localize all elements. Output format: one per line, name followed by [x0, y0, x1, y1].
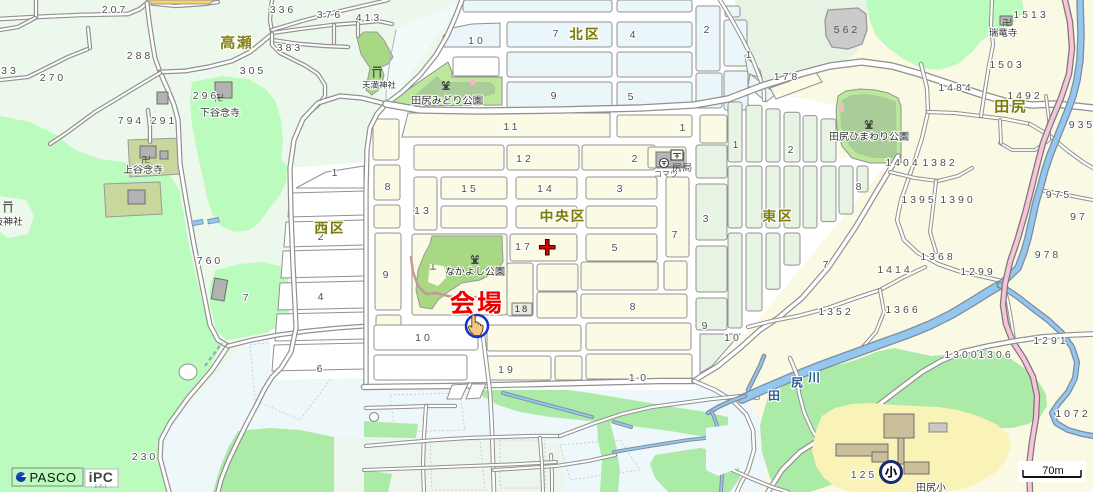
svg-text:4: 4	[630, 29, 639, 41]
svg-text:7: 7	[672, 229, 681, 241]
svg-text:11: 11	[504, 121, 521, 133]
svg-text:3: 3	[703, 213, 712, 225]
svg-text:3: 3	[617, 183, 626, 195]
svg-text:4: 4	[318, 291, 327, 303]
svg-text:975: 975	[1046, 189, 1073, 201]
svg-text:8: 8	[856, 181, 865, 193]
svg-text:1-0: 1-0	[629, 372, 647, 384]
svg-text:1382: 1382	[922, 157, 957, 169]
svg-text:6: 6	[317, 363, 326, 375]
svg-text:305: 305	[240, 65, 267, 77]
svg-text:1366: 1366	[885, 304, 920, 316]
svg-text:794: 794	[118, 115, 145, 127]
svg-text:13: 13	[414, 205, 432, 217]
svg-text:7: 7	[553, 28, 562, 40]
svg-text:1404: 1404	[885, 157, 920, 169]
svg-text:33: 33	[1, 65, 19, 77]
svg-text:178: 178	[774, 71, 801, 83]
svg-text:2: 2	[632, 153, 641, 165]
svg-text:17: 17	[515, 241, 533, 253]
svg-text:1414: 1414	[877, 264, 912, 276]
svg-text:562: 562	[834, 24, 861, 36]
svg-text:383: 383	[277, 42, 304, 54]
svg-text:935: 935	[1069, 119, 1093, 131]
svg-text:1513: 1513	[1013, 9, 1048, 21]
svg-text:5: 5	[628, 91, 637, 103]
svg-text:1: 1	[746, 49, 755, 61]
svg-text:2: 2	[788, 144, 797, 156]
svg-text:1484: 1484	[938, 82, 973, 94]
svg-text:10: 10	[724, 332, 742, 344]
svg-text:1299: 1299	[960, 266, 995, 278]
svg-text:5: 5	[612, 242, 621, 254]
svg-text:15: 15	[461, 183, 479, 195]
svg-text:1: 1	[680, 122, 689, 134]
svg-text:1395: 1395	[901, 194, 936, 206]
svg-text:1300: 1300	[944, 349, 979, 361]
svg-text:376: 376	[317, 9, 344, 21]
svg-text:12: 12	[516, 153, 534, 165]
svg-text:9: 9	[551, 90, 560, 102]
svg-text:7: 7	[243, 292, 252, 304]
svg-text:207: 207	[102, 4, 129, 16]
svg-text:1: 1	[733, 139, 742, 151]
svg-text:413: 413	[356, 12, 383, 24]
svg-text:1291: 1291	[1033, 335, 1068, 347]
svg-text:1072: 1072	[1055, 408, 1090, 420]
svg-text:9: 9	[702, 320, 711, 332]
svg-text:336: 336	[270, 4, 297, 16]
svg-text:291: 291	[151, 115, 178, 127]
svg-text:2: 2	[704, 24, 713, 36]
svg-text:18: 18	[515, 304, 530, 315]
svg-text:7: 7	[823, 259, 832, 271]
svg-text:8: 8	[385, 181, 394, 193]
svg-text:1390: 1390	[940, 194, 975, 206]
svg-text:2-5-1: 2-5-1	[94, 484, 107, 489]
svg-text:230: 230	[132, 451, 159, 463]
svg-text:PASCO: PASCO	[29, 470, 76, 485]
svg-text:760: 760	[197, 255, 224, 267]
svg-text:70m: 70m	[1042, 465, 1063, 477]
svg-text:125: 125	[851, 469, 878, 481]
svg-text:1368: 1368	[920, 251, 955, 263]
svg-text:1: 1	[332, 167, 341, 179]
svg-text:9: 9	[383, 269, 392, 281]
svg-text:19: 19	[498, 364, 516, 376]
svg-text:296: 296	[193, 90, 220, 102]
svg-text:978: 978	[1035, 249, 1062, 261]
svg-text:8: 8	[630, 301, 639, 313]
svg-text:1352: 1352	[818, 306, 853, 318]
svg-text:1503: 1503	[989, 59, 1024, 71]
svg-text:14: 14	[537, 183, 555, 195]
svg-text:288: 288	[127, 50, 154, 62]
svg-text:270: 270	[40, 72, 67, 84]
svg-text:10: 10	[468, 35, 486, 47]
svg-text:1306: 1306	[978, 349, 1013, 361]
svg-text:10: 10	[415, 332, 433, 344]
svg-text:97: 97	[1070, 211, 1088, 223]
